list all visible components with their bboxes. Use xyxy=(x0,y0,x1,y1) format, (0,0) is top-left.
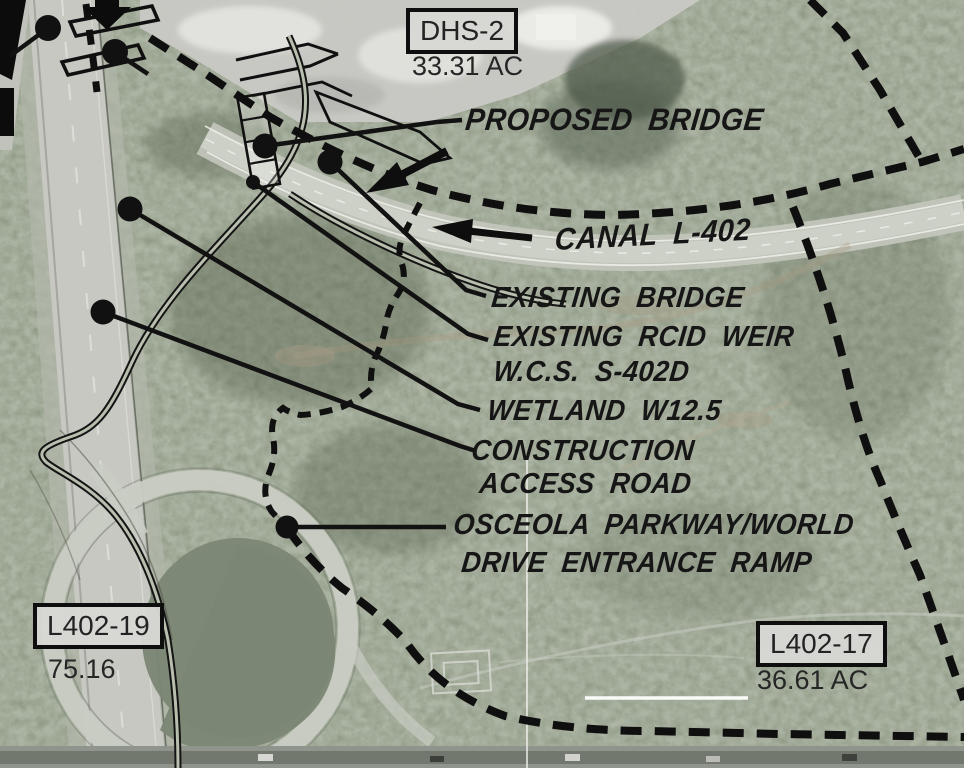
label-wetland: WETLAND W12.5 xyxy=(486,397,723,426)
osceola-parkway-bottom xyxy=(0,746,964,768)
label-proposed-bridge: PROPOSED BRIDGE xyxy=(464,104,765,135)
callout-dot-existing-bridge xyxy=(318,150,343,175)
callout-dot-construction xyxy=(91,300,116,325)
parcel-area-l402-19: 75.16 xyxy=(48,655,116,685)
parcel-area-dhs2: 33.31 AC xyxy=(412,52,523,82)
callout-dot-osceola xyxy=(276,516,299,539)
parcel-box-l402-17: L402-17 xyxy=(756,621,887,667)
label-construction-line1: CONSTRUCTION xyxy=(470,437,696,466)
label-rcid-weir-line2: W.C.S. S-402D xyxy=(492,358,691,387)
callout-dot xyxy=(35,15,61,41)
callout-dot-proposed-bridge xyxy=(253,134,278,159)
parcel-box-l402-19: L402-19 xyxy=(33,603,164,649)
callout-dot xyxy=(102,39,128,65)
label-osceola-line1: OSCEOLA PARKWAY/WORLD xyxy=(452,511,855,540)
callout-dot-rcid-weir xyxy=(246,175,260,189)
label-rcid-weir-line1: EXISTING RCID WEIR xyxy=(492,323,796,352)
callout-dot-wetland xyxy=(118,197,143,222)
label-construction-line2: ACCESS ROAD xyxy=(478,470,693,499)
label-osceola-line2: DRIVE ENTRANCE RAMP xyxy=(460,549,813,578)
parcel-area-l402-17: 36.61 AC xyxy=(757,666,868,696)
parcel-box-dhs2: DHS-2 xyxy=(406,8,518,54)
label-existing-bridge: EXISTING BRIDGE xyxy=(490,284,746,313)
site-plan-map: PROPOSED BRIDGE CANAL L-402 EXISTING BRI… xyxy=(0,0,964,768)
